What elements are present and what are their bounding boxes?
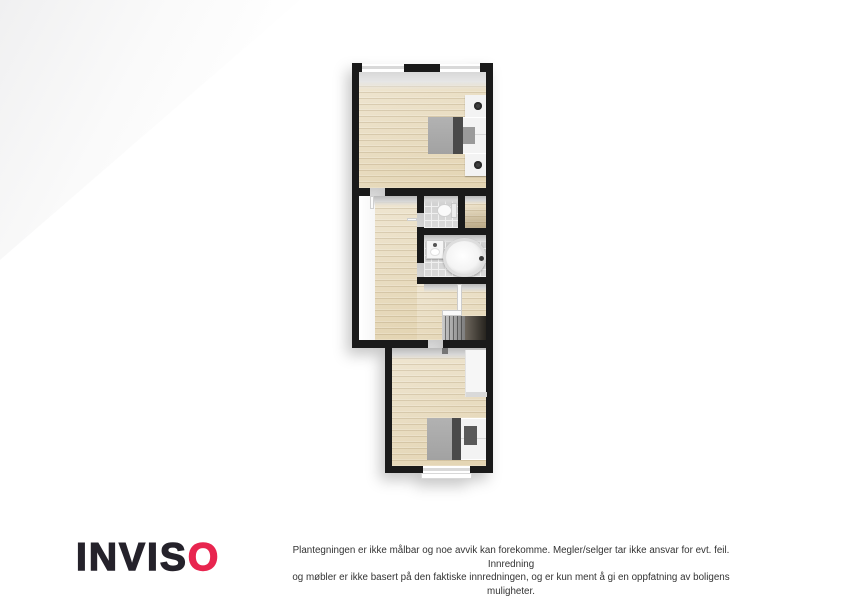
- staircase-void: [465, 316, 486, 340]
- wall-bottom-right: [470, 466, 493, 473]
- nightstand-top-b: [465, 154, 486, 176]
- wall-wc-bottom: [417, 228, 493, 235]
- wall-wc-closet: [458, 196, 465, 228]
- sink-faucet-icon: [433, 243, 437, 247]
- bed-blanket: [452, 418, 461, 460]
- bathtub-faucet-icon: [479, 256, 484, 261]
- nightstand-top-a: [465, 95, 486, 117]
- wardrobe: [465, 350, 486, 397]
- toilet-bowl: [437, 204, 452, 217]
- closet-room-wall-face: [465, 196, 486, 204]
- toilet: [437, 202, 457, 219]
- bed-bottom: [427, 418, 486, 460]
- lamp-icon: [474, 161, 482, 169]
- window-bottom-sill: [421, 473, 472, 479]
- bathtub: [443, 238, 486, 277]
- inviso-logo: INVISO: [76, 536, 220, 580]
- wall-bottom-left: [385, 466, 423, 473]
- bed-duvet: [427, 418, 452, 460]
- wall-divider2-right: [443, 340, 493, 348]
- window-bottom: [423, 466, 470, 473]
- bed-cushion: [463, 127, 475, 144]
- logo-accent-o: O: [188, 536, 220, 580]
- wall-top-mid: [404, 64, 440, 72]
- wall-hall-wet-1: [417, 196, 424, 213]
- bathroom-sink: [426, 240, 444, 259]
- door-leaf-bedroom-top: [370, 196, 374, 209]
- logo-text: INVIS: [76, 536, 188, 580]
- disclaimer-line-2: og møbler er ikke basert på den faktiske…: [288, 571, 734, 598]
- landing-wall-face: [424, 284, 486, 292]
- disclaimer-line-1: Plantegningen er ikke målbar og noe avvi…: [288, 544, 734, 571]
- wall-bath-bottom: [417, 277, 493, 284]
- disclaimer-text: Plantegningen er ikke målbar og noe avvi…: [288, 544, 734, 598]
- staircase: [442, 316, 465, 340]
- bed-blanket: [453, 117, 463, 154]
- background-corner-wash: [0, 0, 300, 260]
- wall-bottomroom-left: [385, 340, 392, 473]
- window-top-2: [440, 64, 480, 72]
- bedroom-top-window-sill: [359, 71, 486, 90]
- knee-wall-strip: [359, 196, 376, 340]
- wall-divider1-right: [385, 188, 493, 196]
- bed-cushion: [464, 426, 477, 445]
- floorplan: [345, 58, 500, 495]
- sink-basin: [430, 248, 440, 256]
- wall-left-outer: [352, 63, 359, 348]
- stair-railing-vertical: [457, 284, 462, 312]
- bed-duvet: [428, 117, 453, 154]
- wardrobe-lip: [466, 392, 487, 397]
- window-top-1: [362, 64, 404, 72]
- bed-top: [428, 117, 486, 154]
- door-leaf-bedroom-bottom: [442, 348, 448, 354]
- door-leaf-wc: [407, 218, 417, 221]
- hallway-wall-face: [370, 196, 417, 206]
- wall-right-outer: [486, 63, 493, 473]
- wall-divider1-left: [352, 188, 370, 196]
- lamp-icon: [474, 102, 482, 110]
